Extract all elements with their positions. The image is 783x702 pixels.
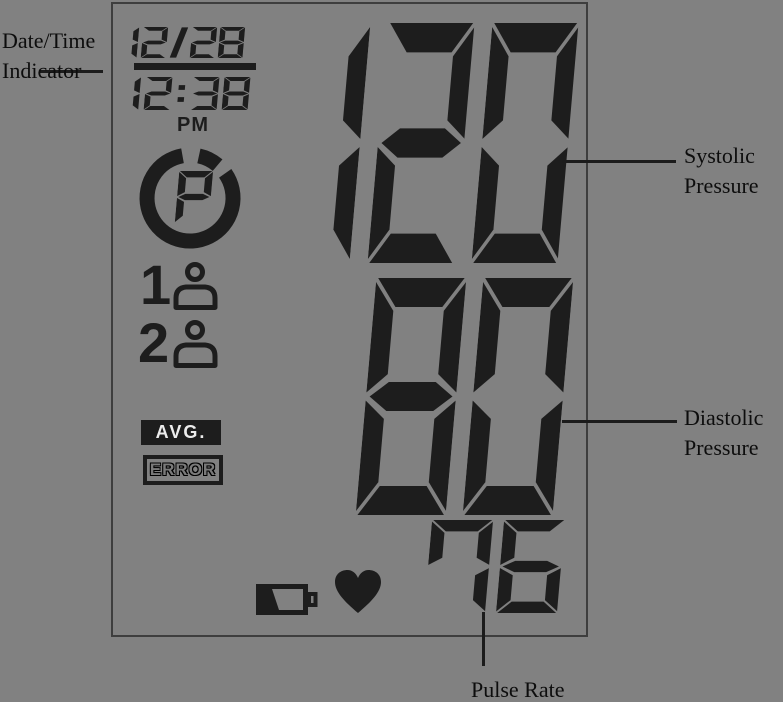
- error-indicator: ERROR: [143, 455, 223, 485]
- systolic-value: [322, 23, 569, 263]
- date-time-label-line1: Date/Time: [2, 26, 95, 56]
- systolic-label-line2: Pressure: [684, 171, 759, 201]
- date-time-divider: [134, 63, 256, 70]
- time-value: [128, 77, 249, 110]
- user1-number: 1: [140, 263, 168, 307]
- diastolic-label-line2: Pressure: [684, 433, 763, 463]
- date-time-label-line2: Indicator: [2, 56, 95, 86]
- battery-low-icon: [256, 584, 318, 615]
- systolic-label: Systolic Pressure: [684, 141, 759, 201]
- diastolic-value: [366, 278, 563, 515]
- diastolic-label-line1: Diastolic: [684, 403, 763, 433]
- pulse-callout-line: [482, 612, 485, 666]
- systolic-label-line1: Systolic: [684, 141, 759, 171]
- date-time-label: Date/Time Indicator: [2, 26, 95, 86]
- pm-indicator: PM: [170, 114, 216, 137]
- diastolic-label: Diastolic Pressure: [684, 403, 763, 463]
- user2-number: 2: [138, 321, 168, 365]
- memory-mode-char: [177, 171, 211, 223]
- avg-indicator: AVG.: [141, 420, 221, 445]
- pulse-rate-label: Pulse Rate: [471, 675, 565, 702]
- avg-indicator-label: AVG.: [156, 422, 207, 443]
- systolic-callout-line: [562, 160, 676, 163]
- pulse-value: [428, 520, 562, 613]
- date-value: [127, 27, 244, 58]
- pulse-rate-label-line1: Pulse Rate: [471, 675, 565, 702]
- error-indicator-label: ERROR: [150, 460, 216, 480]
- heart-icon: [333, 569, 383, 615]
- user2-icon: [172, 320, 219, 368]
- user1-icon: [172, 262, 219, 310]
- manual-diagram: PM 1 2 AVG. ERROR Date/Time Indic: [0, 0, 783, 702]
- diastolic-callout-line: [562, 420, 677, 423]
